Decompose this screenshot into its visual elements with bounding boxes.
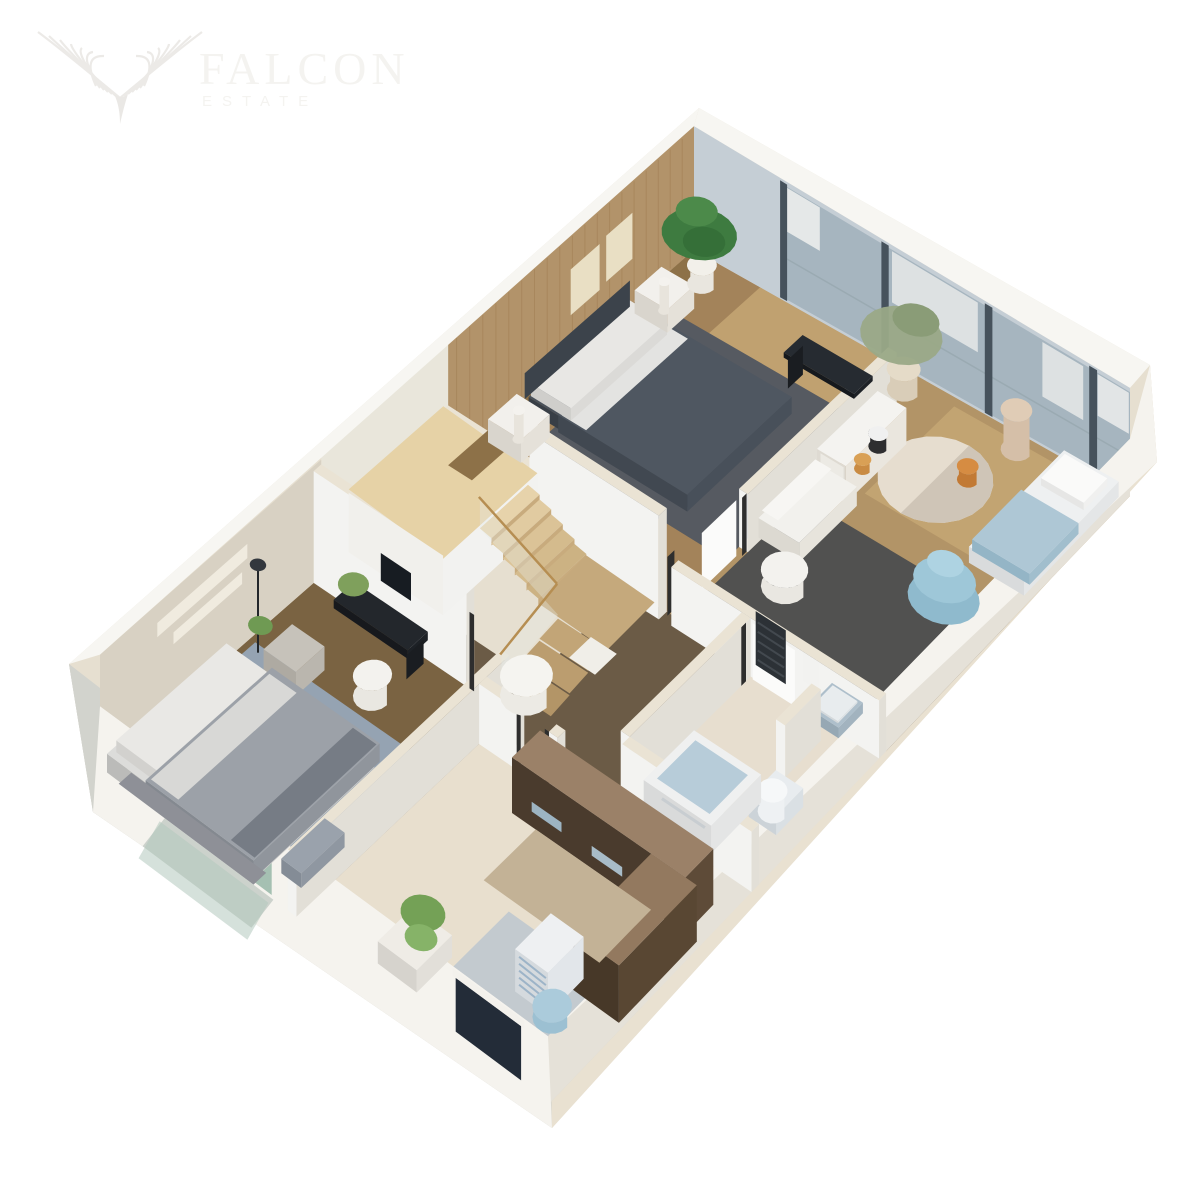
svg-text:ESTATE: ESTATE bbox=[202, 93, 318, 110]
svg-text:FALCON: FALCON bbox=[199, 43, 410, 94]
